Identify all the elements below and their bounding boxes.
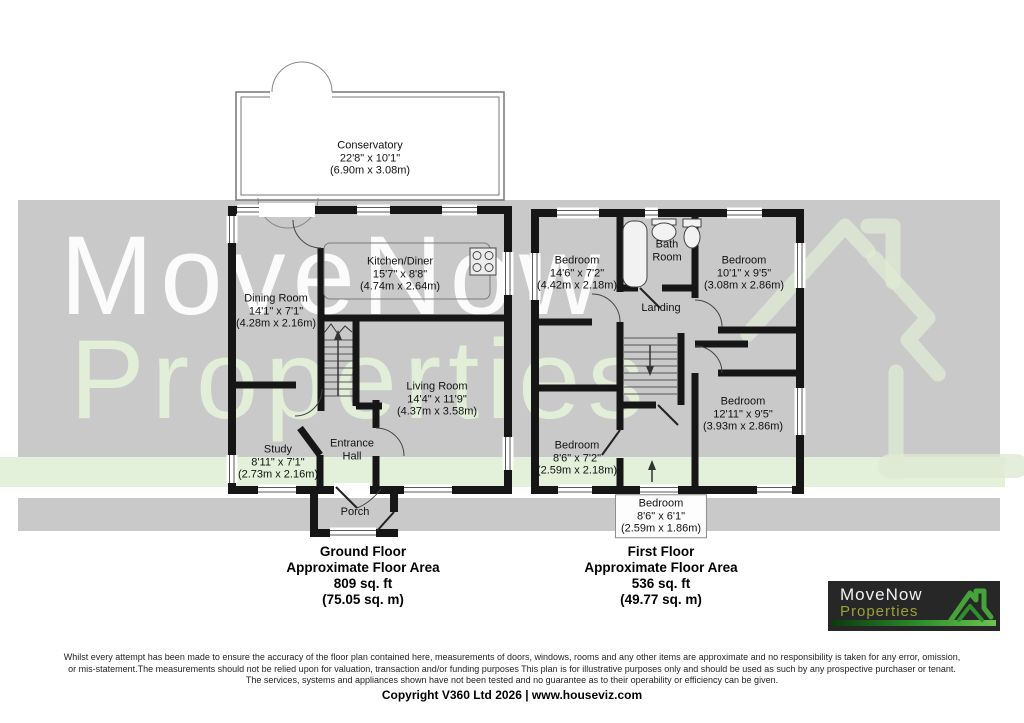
room-name: Bath bbox=[652, 239, 681, 252]
floor-subtitle: Approximate Floor Area bbox=[541, 560, 781, 576]
room-metric: (6.90m x 3.08m) bbox=[330, 164, 410, 177]
stairs-down-icon bbox=[624, 338, 677, 394]
room-name: Bedroom bbox=[704, 254, 784, 267]
floor-title: Ground Floor bbox=[243, 544, 483, 560]
room-metric: (4.42m x 2.18m) bbox=[537, 279, 617, 292]
room-label-study: Study 8'11" x 7'1" (2.73m x 2.16m) bbox=[238, 443, 318, 481]
room-name: Porch bbox=[341, 506, 370, 519]
floorplan-page: MoveNow Properties bbox=[0, 0, 1024, 723]
room-dims: 8'6" x 7'2" bbox=[537, 452, 617, 465]
room-name: Conservatory bbox=[330, 139, 410, 152]
disclaimer-line: Whilst every attempt has been made to en… bbox=[0, 652, 1024, 664]
floor-area-metric: (49.77 sq. m) bbox=[541, 592, 781, 608]
logo-brand-line2: Properties bbox=[840, 603, 918, 620]
room-label-landing: Landing bbox=[641, 302, 680, 315]
room-metric: (2.59m x 2.18m) bbox=[537, 464, 617, 477]
room-dims: 15'7" x 8'8" bbox=[360, 268, 440, 281]
room-dims: 14'4" x 11'9" bbox=[397, 393, 477, 406]
disclaimer-line: or mis-statement.The measurements should… bbox=[0, 664, 1024, 676]
room-name: Bedroom bbox=[537, 439, 617, 452]
room-name: Living Room bbox=[397, 380, 477, 393]
room-dims: 10'1" x 9'5" bbox=[704, 267, 784, 280]
room-name: Bedroom bbox=[537, 254, 617, 267]
room-name: Dining Room bbox=[236, 292, 316, 305]
room-dims: 12'11" x 9'5" bbox=[703, 408, 783, 421]
room-name: Bedroom bbox=[703, 395, 783, 408]
room-metric: (4.28m x 2.16m) bbox=[236, 317, 316, 330]
room-label-bedroom-3: Bedroom 12'11" x 9'5" (3.93m x 2.86m) bbox=[703, 395, 783, 433]
floor-subtitle: Approximate Floor Area bbox=[243, 560, 483, 576]
room-label-bath-room: Bath Room bbox=[652, 239, 681, 264]
room-metric: (4.74m x 2.64m) bbox=[360, 280, 440, 293]
room-label-living-room: Living Room 14'4" x 11'9" (4.37m x 3.58m… bbox=[397, 380, 477, 418]
copyright-line: Copyright V360 Ltd 2026 | www.houseviz.c… bbox=[0, 688, 1024, 702]
room-label-bedroom-4: Bedroom 8'6" x 7'2" (2.59m x 2.18m) bbox=[537, 439, 617, 477]
house-ribbon-icon bbox=[948, 584, 994, 626]
room-name: Hall bbox=[330, 450, 374, 463]
room-metric: (2.73m x 2.16m) bbox=[238, 468, 318, 481]
floor-area-metric: (75.05 sq. m) bbox=[243, 592, 483, 608]
room-dims: 14'6" x 7'2" bbox=[537, 267, 617, 280]
conservatory-top-opening bbox=[270, 85, 332, 99]
floor-area-imperial: 536 sq. ft bbox=[541, 576, 781, 592]
hob-icon bbox=[470, 248, 496, 275]
room-dims: 14'1" x 7'1" bbox=[236, 305, 316, 318]
room-name: Bedroom bbox=[621, 497, 701, 510]
floor-area-imperial: 809 sq. ft bbox=[243, 576, 483, 592]
stairs-up-icon bbox=[324, 324, 353, 396]
disclaimer-text: Whilst every attempt has been made to en… bbox=[0, 652, 1024, 687]
room-name: Study bbox=[238, 443, 318, 456]
room-dims: 8'6" x 6'1" bbox=[621, 510, 701, 523]
room-metric: (3.93m x 2.86m) bbox=[703, 420, 783, 433]
room-name: Kitchen/Diner bbox=[360, 255, 440, 268]
room-label-bedroom-1: Bedroom 14'6" x 7'2" (4.42m x 2.18m) bbox=[537, 254, 617, 292]
room-metric: (3.08m x 2.86m) bbox=[704, 279, 784, 292]
room-label-porch: Porch bbox=[341, 506, 370, 519]
room-label-dining-room: Dining Room 14'1" x 7'1" (4.28m x 2.16m) bbox=[236, 292, 316, 330]
porch-door-leaf bbox=[377, 512, 394, 531]
bathtub-icon bbox=[623, 221, 647, 287]
room-label-entrance-hall: Entrance Hall bbox=[330, 438, 374, 463]
room-label-bedroom-2: Bedroom 10'1" x 9'5" (3.08m x 2.86m) bbox=[704, 254, 784, 292]
ground-floor-title-block: Ground Floor Approximate Floor Area 809 … bbox=[243, 544, 483, 608]
disclaimer-line: The services, systems and appliances sho… bbox=[0, 675, 1024, 687]
room-label-bedroom-5-callout: Bedroom 8'6" x 6'1" (2.59m x 1.86m) bbox=[615, 494, 707, 538]
room-label-kitchen-diner: Kitchen/Diner 15'7" x 8'8" (4.74m x 2.64… bbox=[360, 255, 440, 293]
first-floor-title-block: First Floor Approximate Floor Area 536 s… bbox=[541, 544, 781, 608]
room-dims: 22'8" x 10'1" bbox=[330, 152, 410, 165]
logo-brand-line1: MoveNow bbox=[840, 585, 923, 605]
room-name: Entrance bbox=[330, 438, 374, 451]
floor-title: First Floor bbox=[541, 544, 781, 560]
room-name: Landing bbox=[641, 302, 680, 315]
room-metric: (2.59m x 1.86m) bbox=[621, 522, 701, 535]
agency-logo: MoveNow Properties bbox=[828, 581, 1000, 631]
room-dims: 8'11" x 7'1" bbox=[238, 456, 318, 469]
bedroom-callout-arrow bbox=[648, 460, 656, 482]
room-label-conservatory: Conservatory 22'8" x 10'1" (6.90m x 3.08… bbox=[330, 139, 410, 177]
room-name: Room bbox=[652, 251, 681, 264]
room-metric: (4.37m x 3.58m) bbox=[397, 405, 477, 418]
